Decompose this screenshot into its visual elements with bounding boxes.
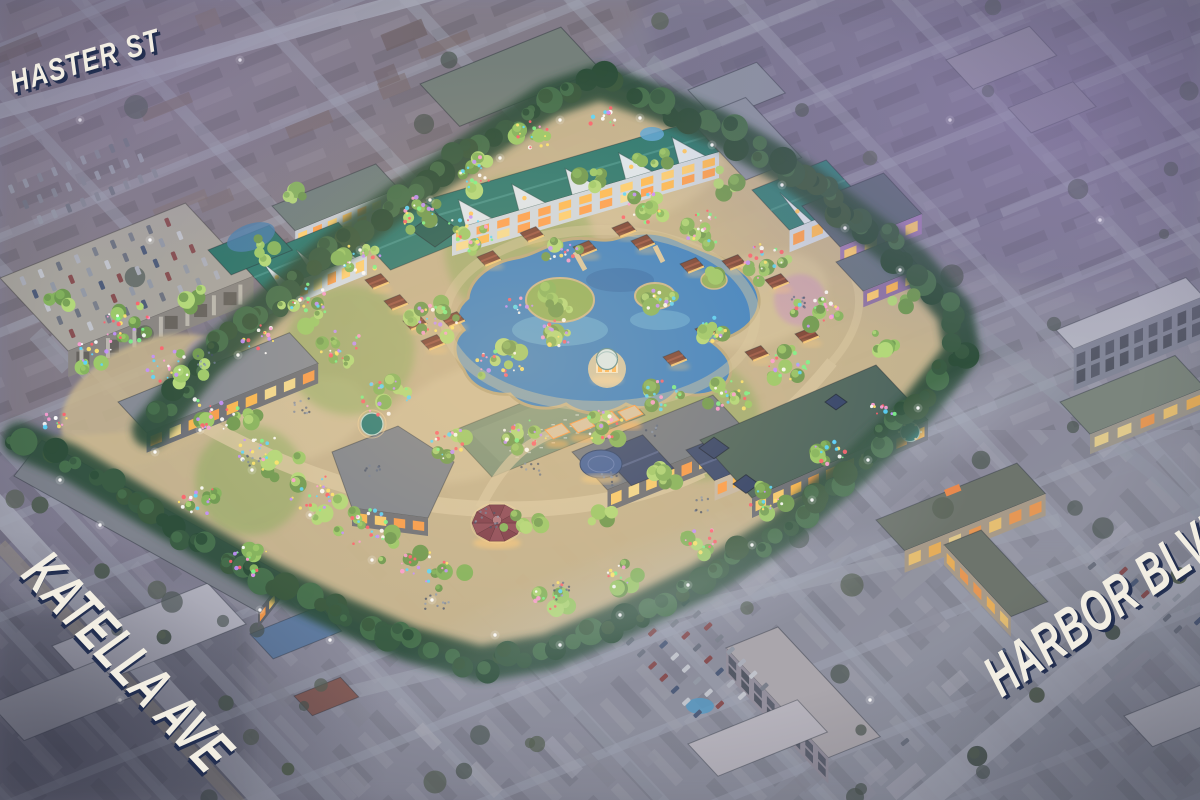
aerial-rendering: HASTER ST KATELLA AVE HARBOR BLVD: [0, 0, 1200, 800]
